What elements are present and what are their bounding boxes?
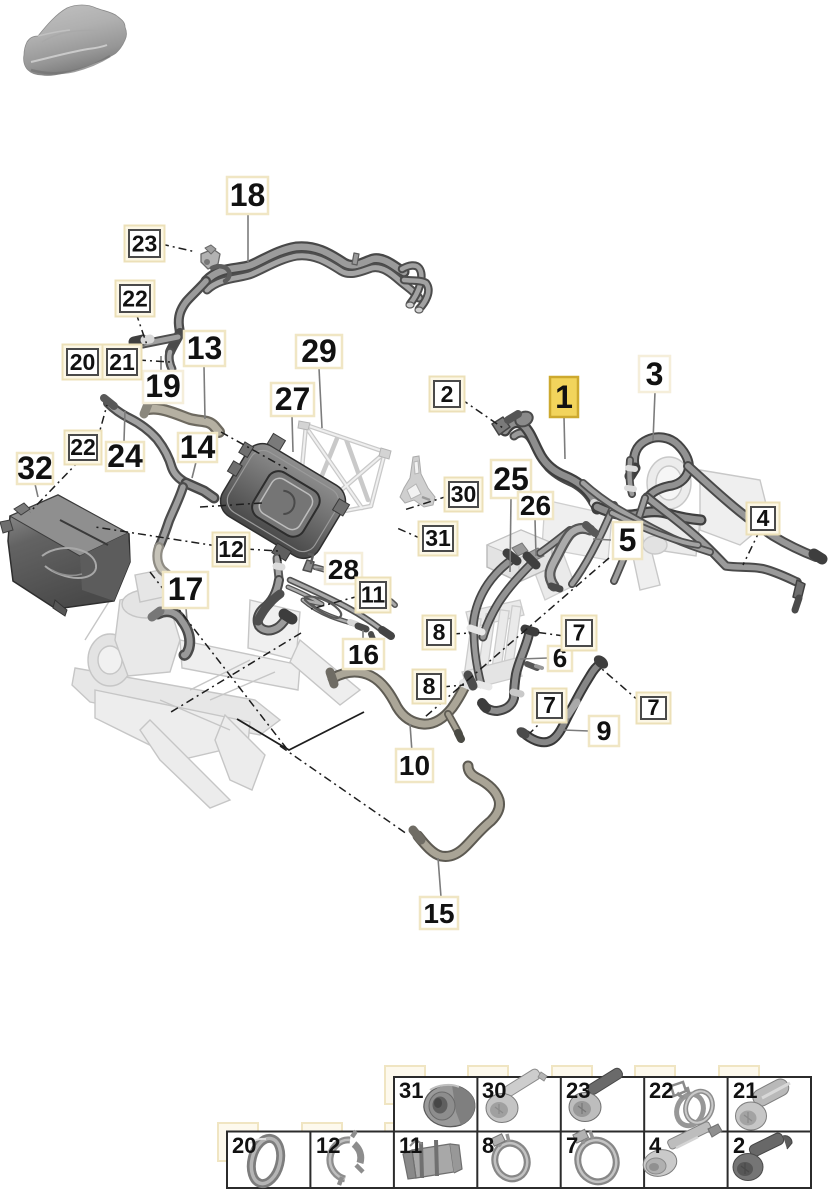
svg-text:31: 31	[425, 525, 451, 551]
svg-text:21: 21	[733, 1078, 757, 1103]
svg-text:4: 4	[757, 505, 770, 531]
svg-text:20: 20	[232, 1133, 256, 1158]
svg-text:12: 12	[316, 1133, 340, 1158]
svg-text:26: 26	[520, 490, 551, 521]
svg-text:32: 32	[17, 450, 53, 486]
svg-text:22: 22	[122, 286, 148, 312]
svg-text:31: 31	[399, 1078, 423, 1103]
svg-text:7: 7	[573, 620, 586, 646]
svg-text:11: 11	[399, 1133, 422, 1158]
svg-text:7: 7	[647, 695, 659, 720]
svg-text:23: 23	[566, 1078, 590, 1103]
svg-text:3: 3	[646, 356, 664, 392]
svg-text:10: 10	[399, 750, 430, 781]
svg-text:15: 15	[423, 898, 454, 929]
svg-text:7: 7	[566, 1133, 578, 1158]
svg-text:24: 24	[107, 438, 143, 474]
svg-text:8: 8	[423, 673, 436, 699]
svg-text:13: 13	[187, 330, 223, 366]
svg-text:28: 28	[328, 554, 359, 585]
svg-text:14: 14	[180, 429, 216, 465]
svg-text:29: 29	[301, 333, 337, 369]
svg-text:8: 8	[482, 1133, 494, 1158]
svg-text:1: 1	[555, 379, 573, 415]
svg-text:20: 20	[70, 349, 96, 375]
svg-text:30: 30	[482, 1078, 506, 1103]
svg-text:2: 2	[733, 1133, 745, 1158]
svg-text:4: 4	[649, 1133, 662, 1158]
svg-text:21: 21	[109, 349, 135, 375]
svg-text:27: 27	[275, 381, 311, 417]
svg-text:18: 18	[230, 177, 266, 213]
svg-text:22: 22	[649, 1078, 673, 1103]
svg-text:16: 16	[348, 639, 379, 670]
svg-text:12: 12	[218, 536, 244, 562]
svg-text:5: 5	[619, 522, 637, 558]
svg-text:22: 22	[70, 434, 96, 460]
svg-text:9: 9	[596, 716, 611, 746]
svg-text:17: 17	[168, 571, 204, 607]
svg-text:23: 23	[132, 231, 158, 257]
svg-text:30: 30	[451, 481, 477, 507]
svg-text:8: 8	[433, 619, 446, 645]
svg-text:19: 19	[145, 368, 181, 404]
svg-text:11: 11	[361, 582, 386, 608]
svg-text:7: 7	[543, 692, 556, 718]
svg-text:2: 2	[441, 381, 454, 407]
